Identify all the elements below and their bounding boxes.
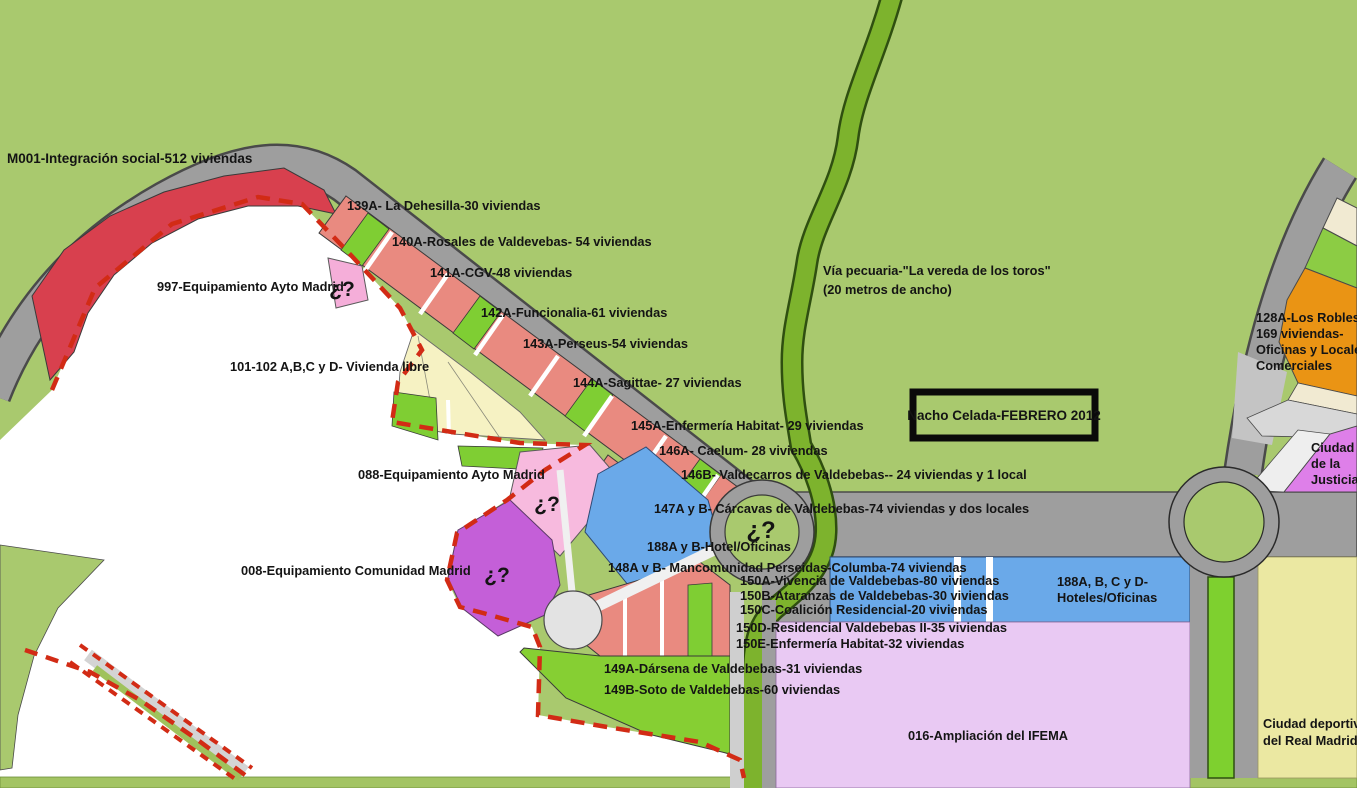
label-150c: 150C-Coalición Residencial-20 viviendas (740, 602, 988, 617)
label-150d: 150D-Residencial Valdebebas II-35 vivien… (736, 620, 1007, 635)
label-128a-line1: 128A-Los Robles I- (1256, 310, 1357, 325)
label-016-ifema: 016-Ampliación del IFEMA (908, 728, 1068, 743)
small-roundabout (544, 591, 602, 649)
label-m001: M001-Integración social-512 viviendas (7, 151, 252, 166)
valdebebas-plan-map: M001-Integración social-512 viviendas 13… (0, 0, 1357, 788)
label-150e: 150E-Enfermería Habitat-32 viviendas (736, 636, 964, 651)
label-997: 997-Equipamiento Ayto Madrid (157, 279, 344, 294)
unknown-mark-roundabout: ¿? (746, 517, 775, 544)
label-140a: 140A-Rosales de Valdevebas- 54 viviendas (392, 234, 652, 249)
label-150b: 150B-Ataranzas de Valdebebas-30 vivienda… (740, 588, 1009, 603)
label-142a: 142A-Funcionalia-61 viviendas (481, 305, 667, 320)
label-128a-line2: 169 viviendas- (1256, 326, 1344, 341)
author-box-text: Nacho Celada-FEBRERO 2012 (907, 408, 1101, 423)
label-088: 088-Equipamiento Ayto Madrid (358, 467, 545, 482)
label-real-madrid-line2: del Real Madrid (1263, 733, 1357, 748)
valdebebas-plan-stage: M001-Integración social-512 viviendas 13… (0, 0, 1357, 788)
label-hoteles-line1: 188A, B, C y D- (1057, 574, 1148, 589)
label-146b: 146B- Valdecarros de Valdebebas-- 24 viv… (681, 467, 1027, 482)
label-101-102: 101-102 A,B,C y D- Vivienda libre (230, 359, 429, 374)
label-hoteles-line2: Hoteles/Oficinas (1057, 590, 1157, 605)
label-143a: 143A-Perseus-54 viviendas (523, 336, 688, 351)
label-139a: 139A- La Dehesilla-30 viviendas (347, 198, 540, 213)
label-justicia-line3: Justicia (1311, 472, 1357, 487)
label-128a-line3: Oficinas y Locales (1256, 342, 1357, 357)
label-008: 008-Equipamiento Comunidad Madrid (241, 563, 471, 578)
label-145a: 145A-Enfermería Habitat- 29 viviendas (631, 418, 864, 433)
label-via-pecuaria-line1: Vía pecuaria-"La vereda de los toros" (823, 263, 1051, 278)
unknown-mark-997: ¿? (329, 278, 355, 301)
street-west (448, 400, 450, 470)
unknown-mark-008: ¿? (484, 564, 510, 587)
unknown-mark-088: ¿? (534, 493, 560, 516)
east-roundabout-island (1184, 482, 1264, 562)
label-146a: 146A- Caelum- 28 viviendas (659, 443, 828, 458)
label-141a: 141A-CGV-48 viviendas (430, 265, 572, 280)
green-strip-east (1208, 577, 1234, 778)
label-149b: 149B-Soto de Valdebebas-60 viviendas (604, 682, 840, 697)
label-justicia-line2: de la (1311, 456, 1341, 471)
label-144a: 144A-Sagittae- 27 viviendas (573, 375, 742, 390)
east-roundabout (1169, 467, 1279, 577)
label-147ab: 147A y B- Cárcavas de Valdebebas-74 vivi… (654, 501, 1029, 516)
label-128a-line4: Comerciales (1256, 358, 1332, 373)
label-justicia-line1: Ciudad (1311, 440, 1354, 455)
label-via-pecuaria-line2: (20 metros de ancho) (823, 282, 952, 297)
label-150a: 150A-Vivencia de Valdebebas-80 viviendas (740, 573, 999, 588)
green-strip-south (688, 583, 712, 656)
label-149a: 149A-Dársena de Valdebebas-31 viviendas (604, 661, 862, 676)
label-real-madrid-line1: Ciudad deportiva (1263, 716, 1357, 731)
